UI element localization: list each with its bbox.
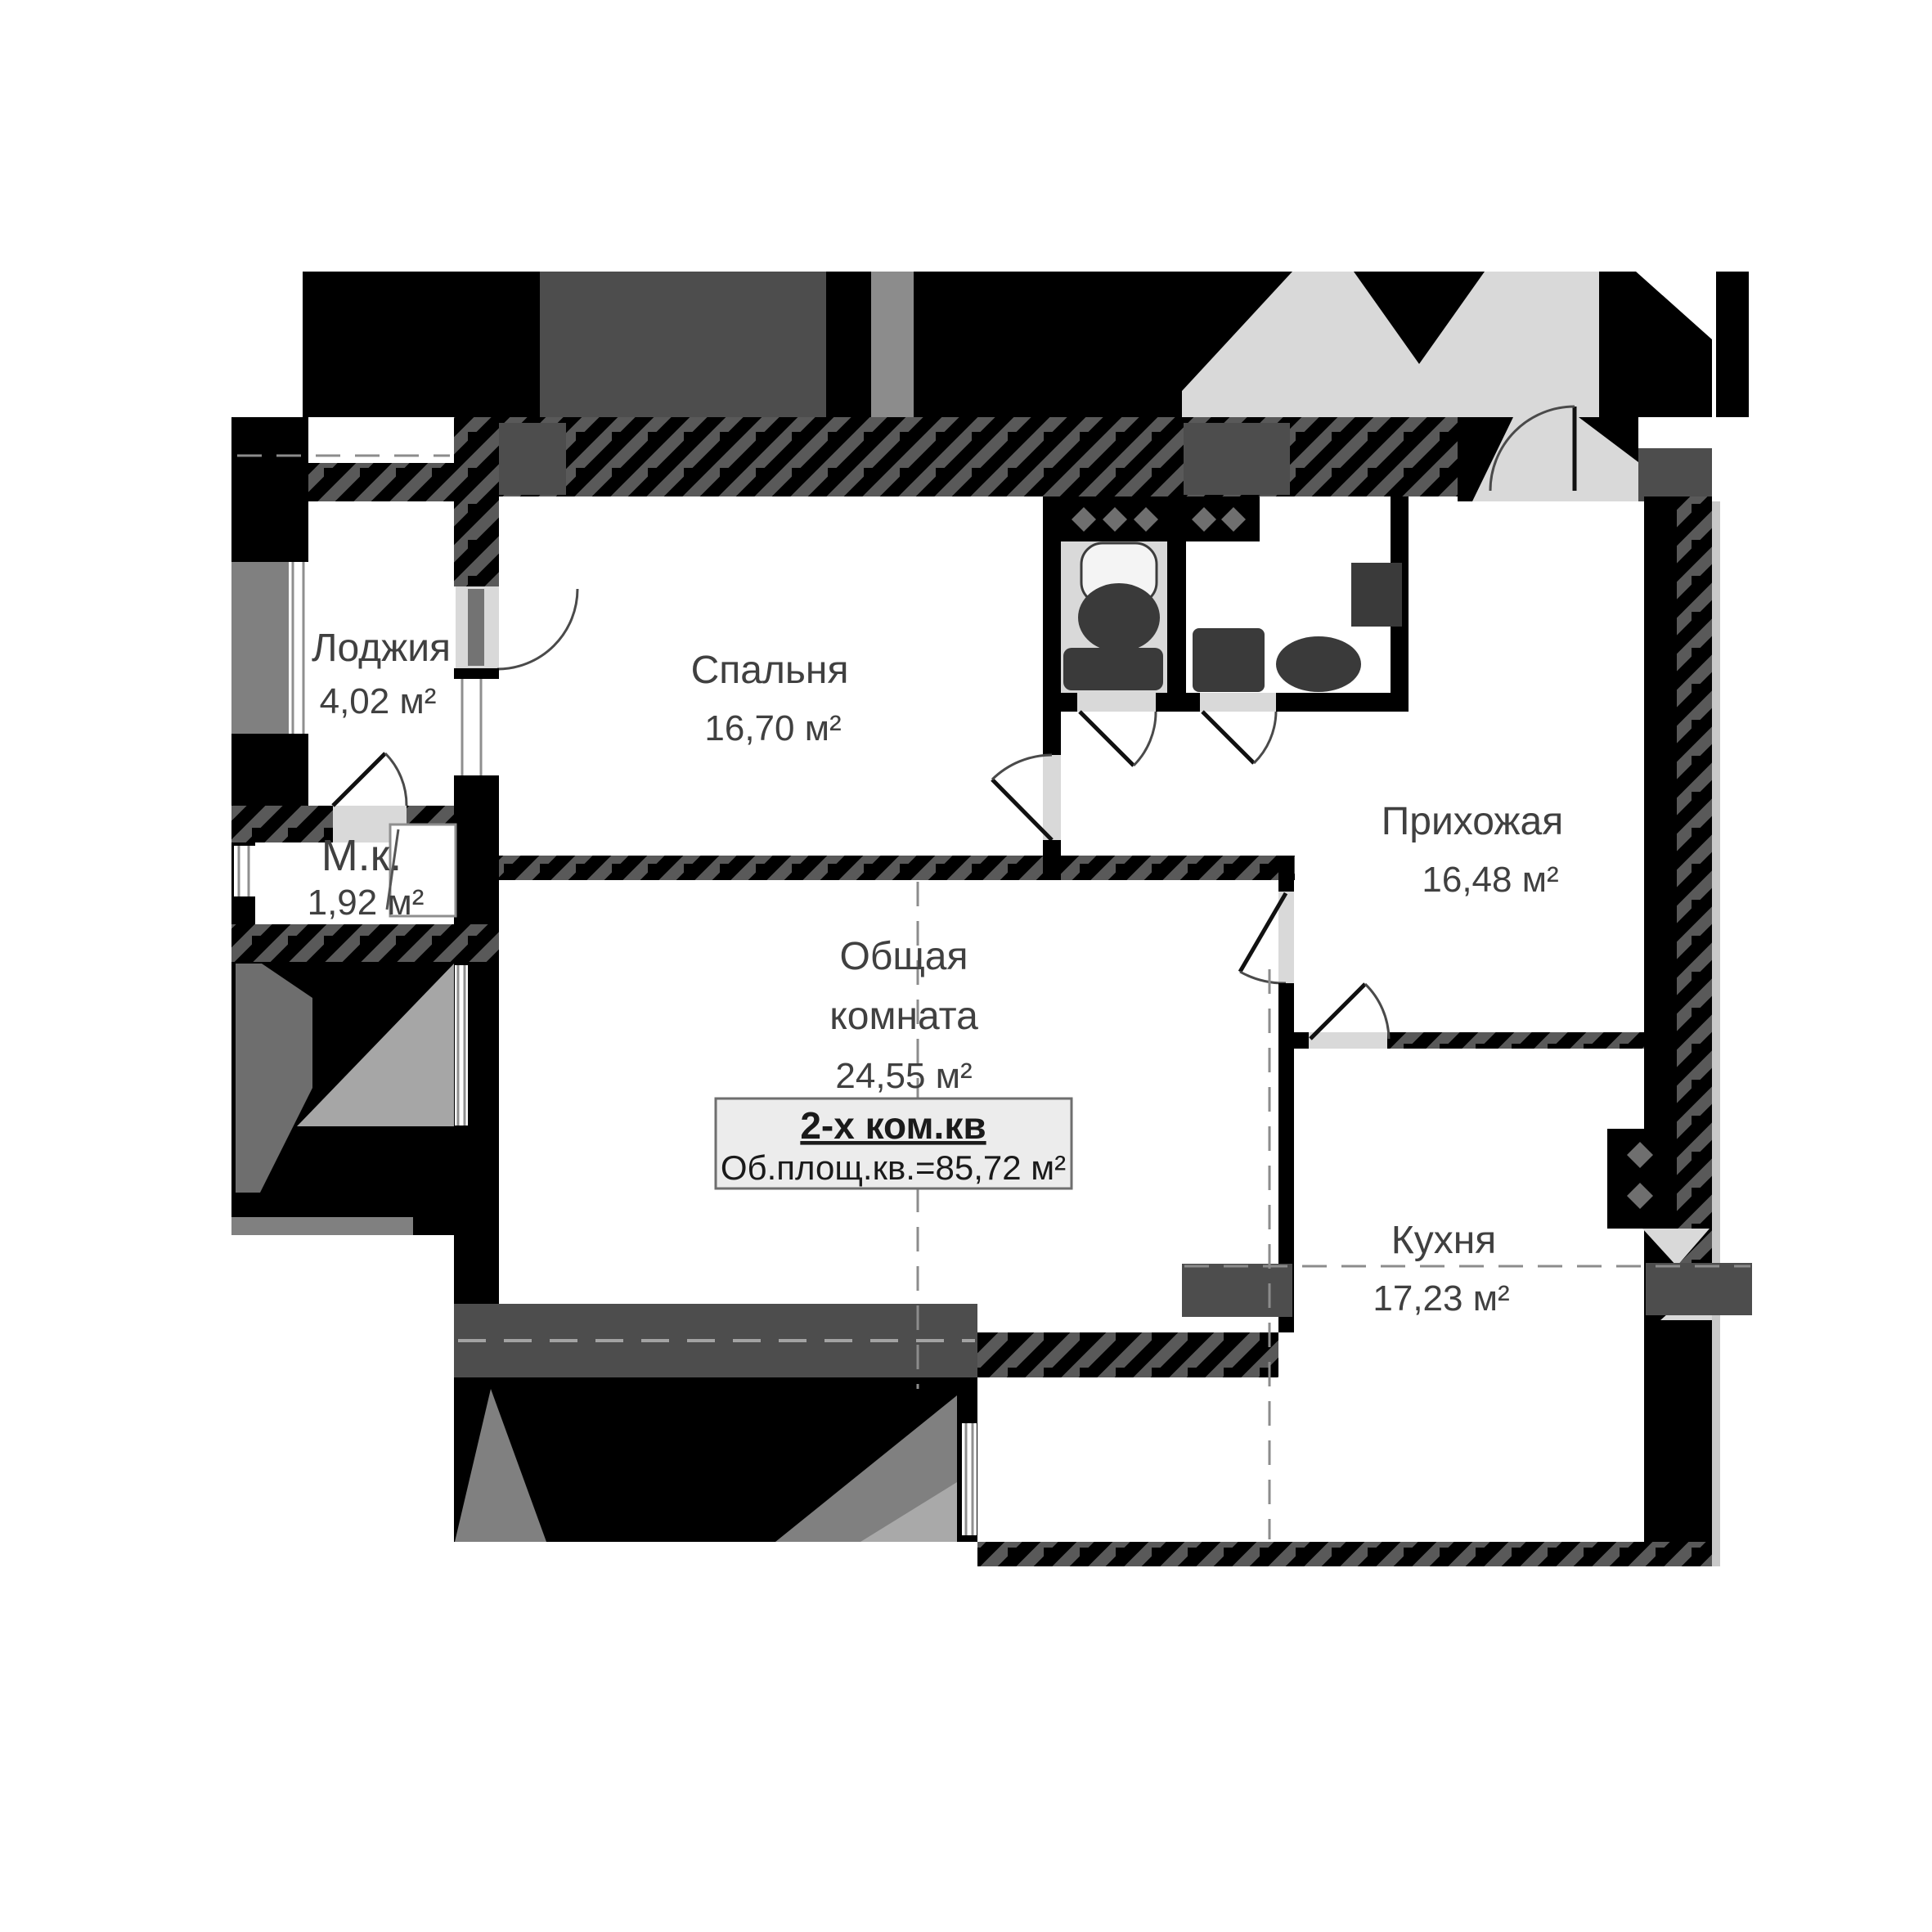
living-label-line2: комната (829, 995, 978, 1038)
loggia-area: 4,02 м² (320, 681, 437, 721)
kitchen-door (1309, 984, 1389, 1049)
loggia-bedroom-wall (454, 417, 577, 962)
mk-label: М.к. (321, 831, 402, 880)
loggia-label: Лоджия (312, 627, 451, 670)
bathroom-door (1202, 712, 1276, 763)
bedroom-bottom-wall (499, 856, 1295, 880)
loggia-walls (231, 501, 308, 842)
window-block (1182, 1264, 1292, 1317)
bedroom-label: Спальня (691, 649, 849, 692)
mk-area: 1,92 м² (308, 883, 425, 923)
hallway-label: Прихожая (1382, 800, 1563, 843)
bath-sink-icon (1276, 636, 1361, 692)
living-left-wall (454, 962, 499, 1304)
exterior-top-shapes (303, 272, 1749, 417)
living-area: 24,55 м² (835, 1056, 972, 1096)
entrance-door (1458, 407, 1638, 501)
kitchen-area: 17,23 м² (1373, 1278, 1509, 1319)
washer-icon (1193, 628, 1265, 692)
wall-column (1184, 423, 1290, 495)
living-label-line1: Общая (839, 935, 968, 978)
hallway-kitchen-wall (1294, 984, 1644, 1049)
living-right-wall (1240, 856, 1294, 1332)
info-box-area: Об.площ.кв.=85,72 м² (721, 1148, 1066, 1187)
window-band (454, 1304, 977, 1377)
wc-door (1080, 712, 1156, 766)
info-box-title: 2-х ком.кв (800, 1104, 986, 1147)
floor-plan-stage: Лоджия 4,02 м² Спальня 16,70 м² М.к. 1,9… (0, 0, 1932, 1932)
mk-door (333, 753, 407, 806)
living-bottom (454, 1264, 1292, 1377)
bottom-wall (977, 1542, 1712, 1566)
bedroom-area: 16,70 м² (704, 708, 841, 748)
kitchen-label: Кухня (1391, 1219, 1496, 1262)
exterior-bottom-shadow (454, 1377, 977, 1542)
kitchen-window-block (1646, 1263, 1752, 1315)
floor-plan-drawing: Лоджия 4,02 м² Спальня 16,70 м² М.к. 1,9… (0, 0, 1932, 1932)
top-wall (231, 407, 1712, 501)
bedroom-door (992, 755, 1061, 840)
info-box: 2-х ком.кв Об.площ.кв.=85,72 м² (716, 1099, 1072, 1188)
sink-icon (1063, 648, 1163, 690)
toilet-icon (1078, 543, 1160, 652)
hallway-area: 16,48 м² (1422, 860, 1558, 900)
bathroom-block (992, 496, 1409, 880)
boiler-icon (1351, 563, 1402, 627)
living-room-door (1240, 892, 1294, 983)
balcony-door (456, 586, 577, 669)
wall-column (1638, 448, 1712, 501)
